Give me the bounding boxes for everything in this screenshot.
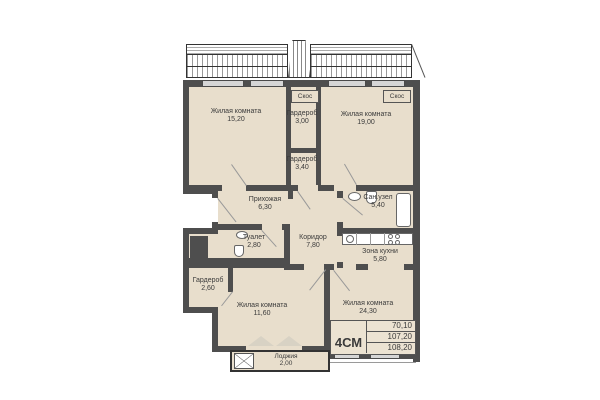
room-name: Коридор — [299, 234, 327, 242]
room-area: 3,00 — [295, 118, 309, 126]
stove-burner-icon — [388, 234, 393, 239]
room-area: 3,40 — [295, 164, 309, 172]
room-label-living1900: Жилая комната 19,00 — [321, 111, 411, 127]
room-name: Жилая комната — [341, 111, 392, 119]
room-name: Зона кухни — [362, 248, 398, 256]
roof-band — [311, 45, 411, 55]
room-label-living1160: Жилая комната 11,60 — [217, 302, 307, 318]
roof-hatch-right — [310, 44, 412, 78]
door-opening-toilet — [262, 224, 282, 230]
door-opening-wardrobe340 — [298, 185, 318, 191]
wall-wardrobe-divider — [286, 148, 321, 153]
room-label-wardrobe340: Гардероб 3,40 — [272, 156, 332, 172]
wall-divider-lower-b — [326, 264, 334, 270]
balcony-door-leaf — [276, 336, 302, 346]
roof-hatch-row — [187, 67, 287, 77]
room-label-wardrobe260: Гардероб 2,60 — [178, 277, 238, 293]
wall-left-lower — [183, 228, 189, 313]
roof-hatch-left — [186, 44, 288, 78]
window-sill-line — [330, 362, 416, 363]
roof-dormer — [288, 40, 310, 78]
room-area: 6,30 — [258, 204, 272, 212]
room-label-living1520: Жилая комната 15,20 — [191, 108, 281, 124]
entrance-door-opening — [212, 198, 218, 222]
stamp-empty-cell — [331, 321, 367, 331]
room-area: 19,00 — [357, 119, 375, 127]
stamp-type: 4СМ — [331, 331, 367, 353]
stamp-area: 107,20 — [367, 331, 415, 342]
roof-band — [187, 45, 287, 55]
stove-burner-icon — [395, 234, 400, 239]
apartment-stamp: 70,10 4СМ 107,20 108,20 — [330, 320, 416, 355]
wall-divider-lower-c — [356, 264, 368, 270]
floor-plan: Скос Скос Жилая комната 15,20 Гардероб 3… — [0, 0, 600, 400]
door-opening-room1520 — [222, 185, 246, 191]
slope-marker: Скос — [291, 90, 319, 103]
room-name: Гардероб — [287, 156, 318, 164]
wall-notch-bottom — [183, 228, 218, 234]
room-name: Гардероб — [193, 277, 224, 285]
window-top-4 — [371, 80, 405, 87]
stamp-total-area: 108,20 — [367, 342, 415, 353]
room-label-kitchen: Зона кухни 5,80 — [335, 248, 425, 264]
room-name: Сан.узел — [363, 194, 392, 202]
room-name: Жилая комната — [237, 302, 288, 310]
loggia-hatch-window — [234, 353, 254, 369]
room-name: Жилая комната — [343, 300, 394, 308]
room-area: 7,80 — [306, 242, 320, 250]
room-name: Прихожая — [249, 196, 281, 204]
window-top-3 — [328, 80, 366, 87]
roof-hatch-row — [311, 55, 411, 67]
door-opening-room1900 — [334, 185, 356, 191]
room-name: Гардероб — [287, 110, 318, 118]
room-area: 2,80 — [247, 242, 261, 250]
roof-hatch-row — [187, 55, 287, 67]
vent-shaft — [190, 236, 208, 260]
room-label-loggia: Лоджия 2,00 — [256, 353, 316, 368]
stamp-living-area: 70,10 — [367, 321, 415, 331]
counter-divider — [370, 233, 371, 245]
room-name: Жилая комната — [211, 108, 262, 116]
room-area: 11,60 — [254, 310, 271, 318]
counter-divider — [384, 233, 385, 245]
roof-hatch-row — [311, 67, 411, 77]
roof-slope-line — [411, 44, 425, 78]
wall-left-upper — [183, 80, 189, 194]
slope-marker: Скос — [383, 90, 411, 103]
wall-divider-lower-a — [284, 264, 304, 270]
window-top-2 — [250, 80, 284, 87]
wall-divider-lower-d — [404, 264, 413, 270]
room-label-sanuzel: Сан.узел 5,40 — [333, 194, 423, 210]
room-area: 24,30 — [359, 308, 377, 316]
room-area: 15,20 — [227, 116, 245, 124]
room-label-living2430: Жилая комната 24,30 — [323, 300, 413, 316]
stove-burner-icon — [388, 240, 393, 245]
room-label-hallway: Прихожая 6,30 — [220, 196, 310, 212]
balcony-door-leaf — [248, 336, 274, 346]
room-area: 2,00 — [280, 360, 293, 367]
room-area: 5,80 — [373, 256, 387, 264]
room-area: 2,60 — [201, 285, 215, 293]
stove-burner-icon — [395, 240, 400, 245]
room-name: Туалет — [243, 234, 265, 242]
room-area: 5,40 — [371, 202, 385, 210]
room-name: Лоджия — [274, 353, 297, 360]
window-top-1 — [202, 80, 244, 87]
